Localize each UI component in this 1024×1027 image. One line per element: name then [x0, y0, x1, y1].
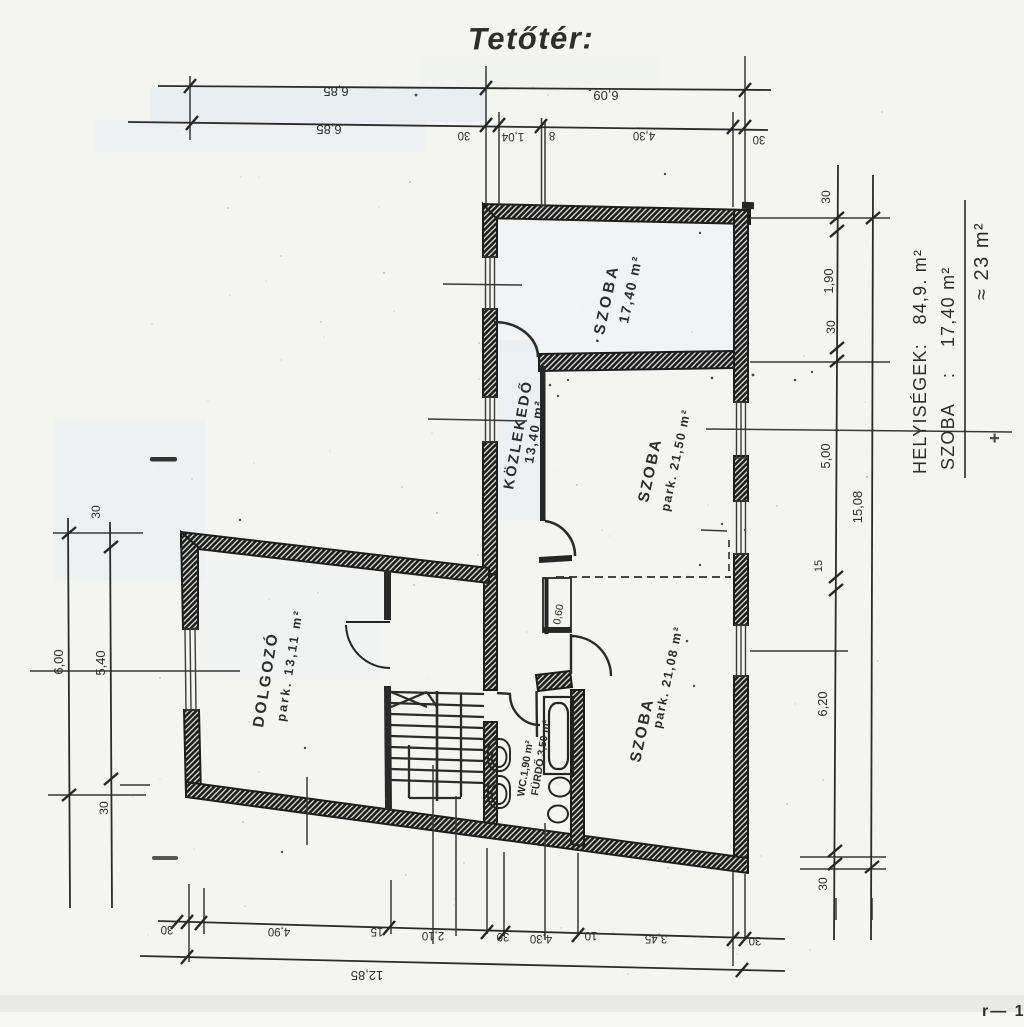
svg-text:6,00: 6,00	[51, 649, 66, 674]
svg-text:1,90: 1,90	[821, 268, 836, 293]
svg-text:30: 30	[819, 190, 833, 204]
svg-text:SZOBA : 17,40 m²: SZOBA : 17,40 m²	[938, 267, 958, 470]
svg-text:30: 30	[458, 129, 471, 141]
svg-text:30: 30	[97, 801, 111, 815]
svg-text:2,10: 2,10	[422, 929, 444, 941]
svg-text:HELYISÉGEK: 84,9. m²: HELYISÉGEK: 84,9. m²	[910, 249, 930, 474]
svg-text:≈ 23 m²: ≈ 23 m²	[971, 222, 993, 300]
svg-text:4,30: 4,30	[530, 932, 552, 944]
svg-text:30: 30	[497, 930, 510, 942]
svg-text:30: 30	[816, 877, 830, 891]
svg-text:r— 1: r— 1	[982, 1003, 1024, 1020]
svg-text:8: 8	[549, 129, 555, 141]
svg-text:30: 30	[824, 320, 838, 334]
svg-text:12,85: 12,85	[351, 968, 384, 983]
svg-text:30: 30	[749, 934, 762, 946]
svg-text:15: 15	[813, 560, 825, 572]
svg-text:30: 30	[161, 923, 174, 935]
svg-text:10: 10	[585, 929, 598, 941]
svg-text:15: 15	[371, 925, 384, 937]
svg-text:5,00: 5,00	[818, 443, 833, 468]
svg-text:3,45: 3,45	[645, 932, 667, 944]
svg-text:4,30: 4,30	[633, 129, 655, 141]
svg-text:30: 30	[89, 505, 103, 519]
svg-text:Tetőtér:: Tetőtér:	[468, 20, 595, 56]
svg-text:6,09: 6,09	[593, 88, 618, 103]
svg-text:1,04: 1,04	[501, 130, 524, 142]
svg-text:15,08: 15,08	[850, 491, 865, 524]
svg-text:5,40: 5,40	[93, 650, 108, 675]
svg-text:4,90: 4,90	[268, 925, 290, 937]
svg-text:30: 30	[753, 133, 766, 145]
svg-text:6,85: 6,85	[323, 84, 348, 99]
svg-text:6,85: 6,85	[316, 122, 341, 137]
svg-text:6,20: 6,20	[815, 691, 830, 716]
